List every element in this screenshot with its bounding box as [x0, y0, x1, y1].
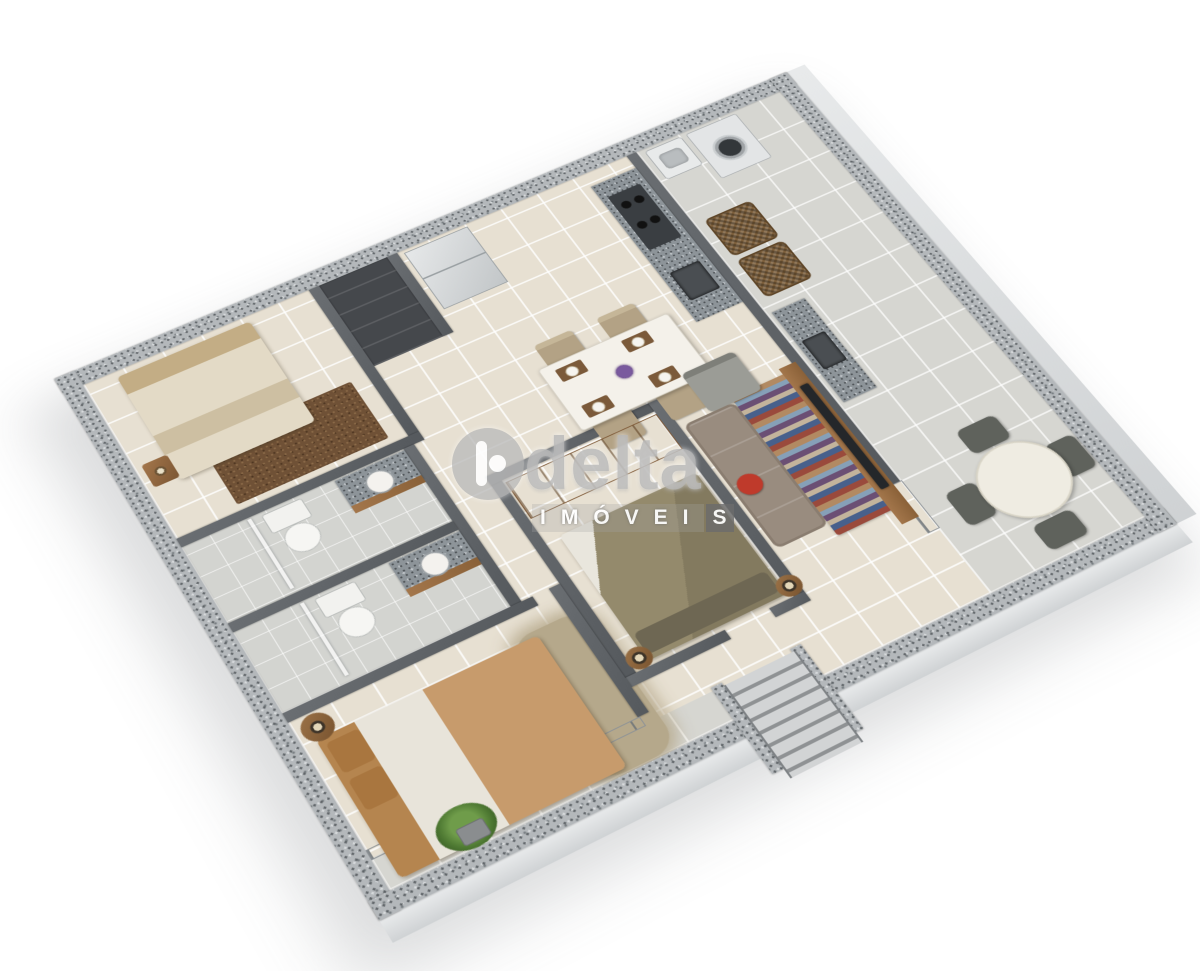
- floorplan-render-page: { "page": { "background": "#ffffff" }, "…: [0, 0, 1200, 922]
- apartment-floorplan: [54, 72, 1177, 920]
- flower-centerpiece: [612, 362, 636, 381]
